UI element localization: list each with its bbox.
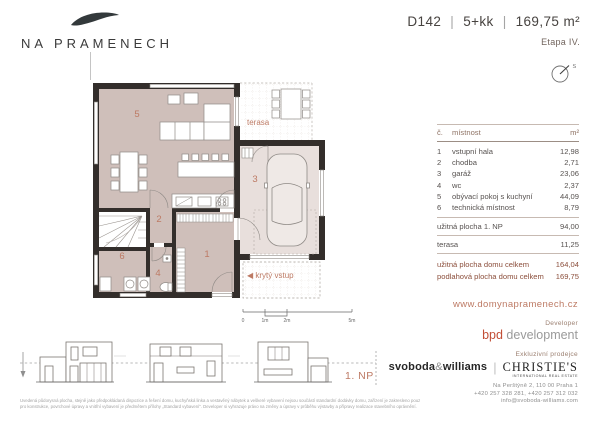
room-area: 2,71 <box>564 158 579 167</box>
total-area: 164,04 <box>556 260 579 269</box>
room-num: 5 <box>437 192 452 201</box>
svoboda-williams-logo: svoboda&williams <box>389 361 488 374</box>
terrace-name: terasa <box>437 240 561 249</box>
scale-0: 0 <box>242 318 245 324</box>
unit-layout: 5+kk <box>463 14 494 29</box>
room-area: 8,79 <box>564 203 579 212</box>
room-label-4: 4 <box>155 268 160 279</box>
elevation-side <box>146 344 226 382</box>
subtotal-row: užitná plocha 1. NP 94,00 <box>437 218 579 235</box>
compass-icon: S <box>552 64 577 82</box>
table-row: 2 chodba 2,71 <box>437 157 579 168</box>
elevation-front <box>36 342 114 382</box>
logo-divider: | <box>493 361 496 374</box>
garage-appliance <box>242 148 253 158</box>
broker-logos: svoboda&williams | CHRISTIE'S INTERNATIO… <box>389 361 578 378</box>
room-label-1: 1 <box>204 249 209 260</box>
room-label-6: 6 <box>119 251 124 262</box>
room-label-3: 3 <box>252 174 257 185</box>
website-link[interactable]: www.domynapramenech.cz <box>453 299 578 310</box>
room-num: 2 <box>437 158 452 167</box>
terrace-area-value: 11,25 <box>561 240 579 249</box>
room-num: 1 <box>437 147 452 156</box>
brochure-page: 5 3 2 1 4 6 terasa ◀ krytý vstup 0 1m 2m… <box>0 0 600 425</box>
table-row: 6 technická místnost 8,79 <box>437 202 579 213</box>
total-row: podlahová plocha domu celkem 169,75 <box>437 270 579 282</box>
sw-part2: williams <box>443 361 487 373</box>
kitchen-counter <box>172 194 234 208</box>
room-num: 4 <box>437 181 452 190</box>
sw-amp: & <box>435 361 443 373</box>
col-unit: m² <box>570 128 579 137</box>
room-name: wc <box>452 181 564 190</box>
room-area: 12,98 <box>560 147 579 156</box>
col-room: místnost <box>452 128 570 137</box>
developer-logo-secondary: development <box>503 328 578 342</box>
table-row: 1 vstupní hala 12,98 <box>437 146 579 157</box>
broker-phones: +420 257 328 281, +420 257 312 032 <box>389 391 578 399</box>
kitchen-island <box>178 154 234 177</box>
christies-logo: CHRISTIE'S INTERNATIONAL REAL ESTATE <box>503 361 578 378</box>
laundry-appliances <box>100 277 150 291</box>
header-separator: | <box>450 14 454 29</box>
room-name: garáž <box>452 169 560 178</box>
broker-label: Exkluzivní prodejce <box>389 351 578 358</box>
developer-label: Developer <box>389 320 578 327</box>
broker-address: Na Perštýně 2, 110 00 Praha 1 <box>389 383 578 391</box>
unit-header: D142 | 5+kk | 169,75 m² <box>407 14 580 29</box>
total-name: užitná plocha domu celkem <box>437 260 556 269</box>
compass-north-label: S <box>573 64 577 70</box>
room-area: 44,09 <box>560 192 579 201</box>
floor-plan: 5 3 2 1 4 6 terasa ◀ krytý vstup <box>93 83 325 298</box>
room-name: chodba <box>452 158 564 167</box>
room-label-5: 5 <box>134 109 139 120</box>
room-name: technická místnost <box>452 203 564 212</box>
room-label-2: 2 <box>156 214 161 225</box>
covered-entry-label: ◀ krytý vstup <box>247 271 294 280</box>
christies-subtitle: INTERNATIONAL REAL ESTATE <box>503 374 578 378</box>
terrace-label: terasa <box>247 118 270 127</box>
unit-id: D142 <box>407 14 441 29</box>
table-header-row: č. místnost m² <box>437 125 579 141</box>
elevation-rear <box>254 342 332 382</box>
developer-logo-primary: bpd <box>482 328 503 342</box>
terrace-row: terasa 11,25 <box>437 236 579 253</box>
scale-1m: 1m <box>262 318 269 324</box>
room-num: 3 <box>437 169 452 178</box>
scale-2m: 2m <box>284 318 291 324</box>
subtotal-name: užitná plocha 1. NP <box>437 222 560 231</box>
developer-logo: bpd development <box>389 328 578 342</box>
room-area: 23,06 <box>560 169 579 178</box>
total-area: 169,75 <box>556 272 579 281</box>
room-name: vstupní hala <box>452 147 560 156</box>
stage-label: Etapa IV. <box>541 37 580 47</box>
header-separator: | <box>503 14 507 29</box>
table-row: 5 obývací pokoj s kuchyní 44,09 <box>437 191 579 202</box>
scale-5m: 5m <box>349 318 356 324</box>
credits-block: Developer bpd development Exkluzivní pro… <box>389 320 578 406</box>
col-number: č. <box>437 128 452 137</box>
total-name: podlahová plocha domu celkem <box>437 272 556 281</box>
logo-divider-line <box>90 52 91 80</box>
floor-level-label: 1. NP <box>345 370 374 382</box>
brand-logo-text: NA PRAMENECH <box>21 36 173 51</box>
room-area: 2,37 <box>564 181 579 190</box>
disclaimer: Uvedená půdorysná plocha, stejně jako př… <box>20 398 420 411</box>
dining-table <box>111 152 147 192</box>
covered-entry-area <box>243 262 320 298</box>
scale-bar: 0 1m 2m 5m <box>242 309 356 324</box>
elevations: 1. NP <box>20 342 376 387</box>
room-num: 6 <box>437 203 452 212</box>
room-name: obývací pokoj s kuchyní <box>452 192 560 201</box>
disclaimer-line2: pro konstrukce, povrchové úpravy a vnitř… <box>20 404 420 410</box>
level-arrow-icon <box>21 352 26 378</box>
table-row: 4 wc 2,37 <box>437 180 579 191</box>
sw-part1: svoboda <box>389 361 436 373</box>
logo-swoosh-icon <box>71 13 119 26</box>
terrace-table <box>272 89 310 119</box>
unit-area: 169,75 m² <box>516 14 580 29</box>
christies-wordmark: CHRISTIE'S <box>503 361 578 373</box>
car <box>265 154 310 246</box>
area-table: č. místnost m² 1 vstupní hala 12,98 2 ch… <box>437 124 579 283</box>
table-row: 3 garáž 23,06 <box>437 168 579 179</box>
subtotal-area: 94,00 <box>560 222 579 231</box>
total-row: užitná plocha domu celkem 164,04 <box>437 258 579 270</box>
